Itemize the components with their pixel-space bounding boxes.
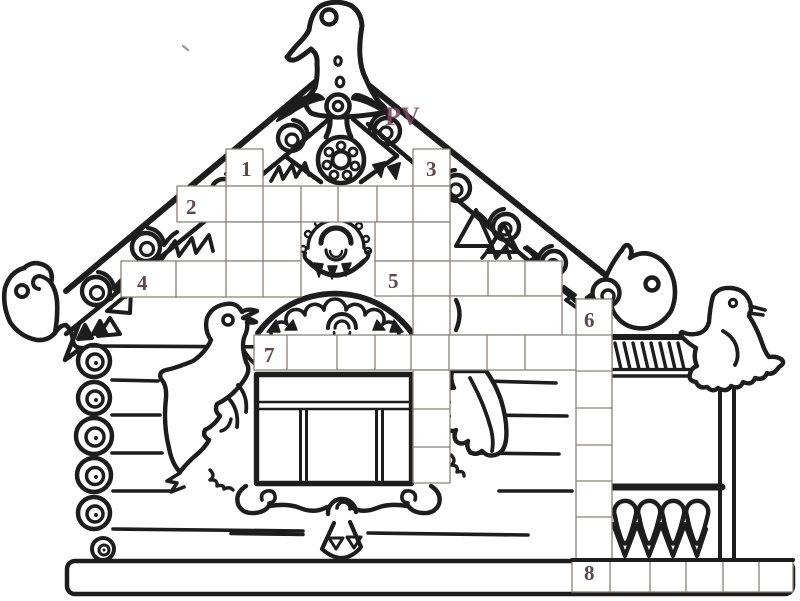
svg-text:8: 8 [584,561,595,585]
svg-text:1: 1 [241,157,252,181]
svg-text:7: 7 [264,343,275,367]
svg-text:4: 4 [137,271,148,295]
svg-text:6: 6 [584,308,595,332]
svg-text:5: 5 [388,269,399,293]
svg-text:3: 3 [426,157,437,181]
svg-text:РV: РV [385,102,420,131]
svg-text:2: 2 [186,195,197,219]
